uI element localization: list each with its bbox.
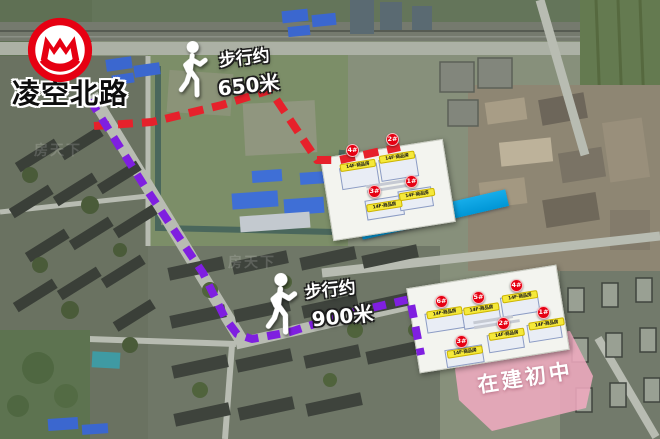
building-badge: 3#: [455, 335, 468, 348]
building-badge: 4#: [510, 279, 523, 292]
building-badge: 4#: [346, 144, 359, 157]
walk-900m-annotation: 步行约 900米: [252, 253, 400, 351]
building-badge: 2#: [386, 133, 399, 146]
walk-distance: 650米: [216, 66, 280, 101]
building-badge: 3#: [368, 185, 381, 198]
building-badge: 5#: [472, 291, 485, 304]
satellite-map: 房天下 房天下 河道 14F·商品房 14F·商品房 14F·商品房 14F·商…: [0, 0, 660, 439]
building-badge: 2#: [497, 317, 510, 330]
shanghai-metro-logo-icon: [27, 17, 93, 83]
building-badge: 6#: [435, 295, 448, 308]
walk-650m-annotation: 步行约 650米: [168, 23, 316, 117]
walking-person-icon: [254, 266, 309, 341]
walk-distance: 900米: [310, 297, 374, 332]
building-badge: 1#: [405, 175, 418, 188]
walking-person-icon: [168, 35, 218, 103]
watermark-text: 房天下: [34, 140, 82, 160]
building-badge: 1#: [537, 306, 550, 319]
